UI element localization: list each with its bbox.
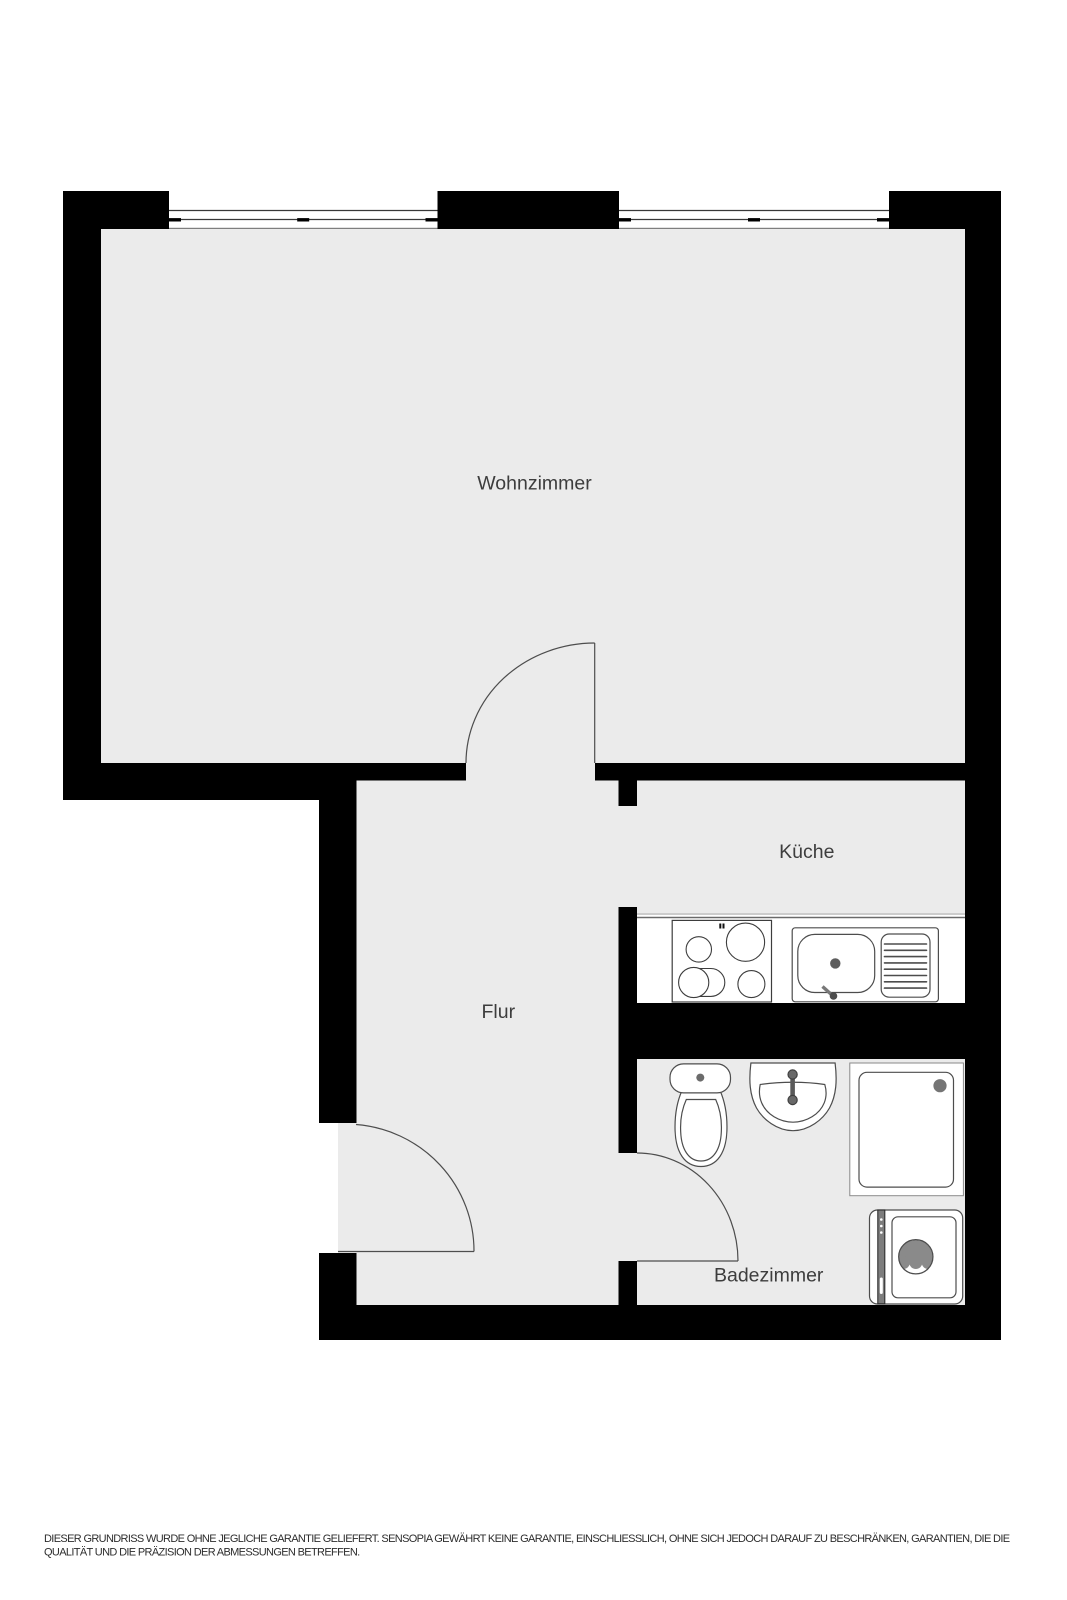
svg-text:DIESER GRUNDRISS WURDE OHNE JE: DIESER GRUNDRISS WURDE OHNE JEGLICHE GAR… (44, 1533, 1010, 1545)
svg-text:Badezimmer: Badezimmer (714, 1264, 824, 1286)
svg-text:QUALITÄT UND DIE PRÄZISION DER: QUALITÄT UND DIE PRÄZISION DER ABMESSUNG… (44, 1547, 360, 1559)
svg-text:Flur: Flur (482, 1001, 516, 1023)
svg-text:Wohnzimmer: Wohnzimmer (477, 472, 592, 494)
svg-text:Küche: Küche (779, 841, 834, 863)
